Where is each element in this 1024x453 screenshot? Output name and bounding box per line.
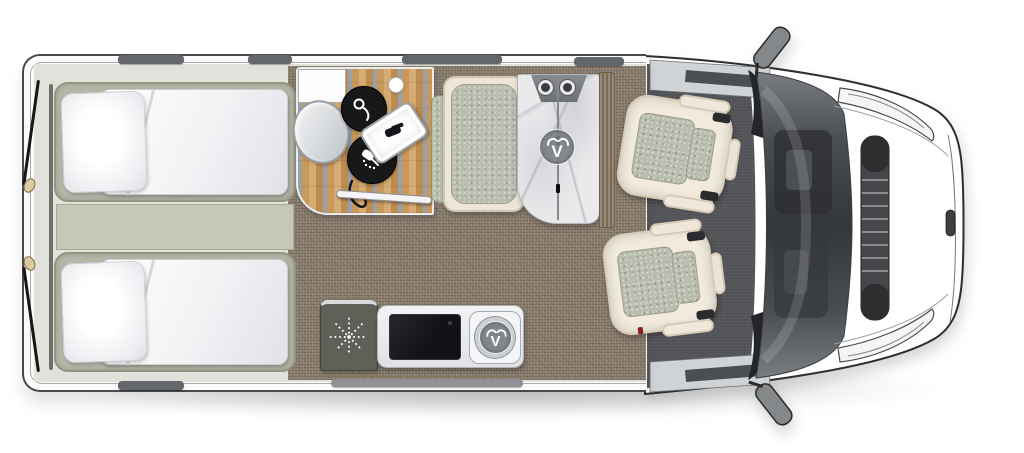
sofa-cushion (451, 84, 517, 204)
swivel-seat-passenger (596, 216, 731, 344)
seatbelt-buckle (638, 327, 644, 335)
shower-room (296, 67, 434, 215)
hob-burner-icon (560, 80, 575, 95)
kitchen-end-panel (599, 72, 615, 228)
basin-tap (384, 125, 402, 138)
brand-logo-letter: V (490, 334, 500, 349)
window-segment (118, 381, 184, 390)
single-bed-top (54, 82, 296, 202)
heater-fan-icon (327, 315, 371, 359)
campervan-floorplan: V V (0, 0, 1024, 453)
window-segment (248, 55, 292, 64)
bed-rail (49, 84, 53, 370)
seat-recliner (696, 309, 715, 320)
brand-logo: V (479, 321, 512, 354)
sliding-door-rail (331, 379, 523, 387)
glass-cooktop (389, 314, 461, 360)
brand-logo-letter: V (551, 143, 562, 160)
brand-logo: V (539, 129, 575, 165)
bed-center-platform (56, 204, 294, 250)
single-bed-bottom (54, 252, 296, 372)
window-segment (118, 55, 184, 64)
tow-eye (946, 210, 955, 236)
pillow (60, 91, 147, 194)
swivel-seat-driver (609, 85, 747, 217)
pillow (60, 261, 147, 364)
flap-hinge (556, 184, 560, 193)
ceiling-light (388, 77, 404, 93)
hob-burner-icon (538, 80, 553, 95)
window-segment (574, 57, 624, 66)
heater-unit (320, 300, 378, 371)
bathroom-cabinet (298, 69, 346, 103)
window-segment (402, 55, 502, 64)
